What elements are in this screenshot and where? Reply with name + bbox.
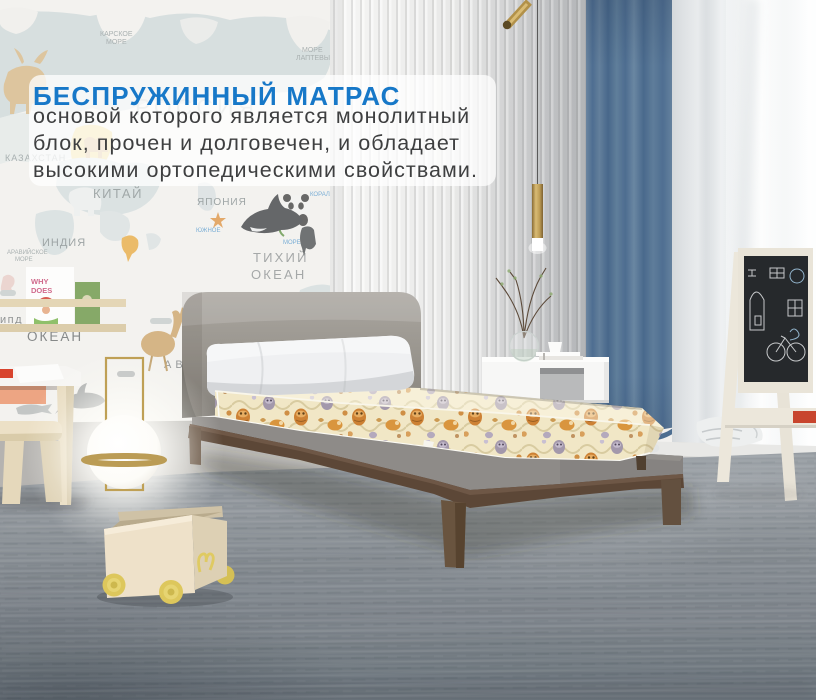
svg-text:МОРЕ: МОРЕ xyxy=(106,39,127,46)
svg-text:МОРЕ: МОРЕ xyxy=(283,240,301,246)
svg-text:ТИХИЙ: ТИХИЙ xyxy=(253,250,309,265)
svg-text:ЯПОНИЯ: ЯПОНИЯ xyxy=(197,197,247,208)
svg-text:ЮЖНОЕ: ЮЖНОЕ xyxy=(196,228,220,234)
svg-text:КАРСКОЕ: КАРСКОЕ xyxy=(100,31,133,38)
svg-text:КИТАЙ: КИТАЙ xyxy=(93,186,143,201)
svg-text:ЛАПТЕВЫХ: ЛАПТЕВЫХ xyxy=(296,55,335,62)
svg-text:ИНДИЯ: ИНДИЯ xyxy=(42,237,86,249)
svg-text:DOES: DOES xyxy=(31,286,52,295)
svg-text:АРАВИЙСКОЕ: АРАВИЙСКОЕ xyxy=(7,248,48,256)
svg-text:WHY: WHY xyxy=(31,277,49,286)
svg-text:ОКЕАН: ОКЕАН xyxy=(251,267,306,282)
svg-text:МОРЕ: МОРЕ xyxy=(15,257,33,263)
svg-text:МОРЕ: МОРЕ xyxy=(302,47,323,54)
